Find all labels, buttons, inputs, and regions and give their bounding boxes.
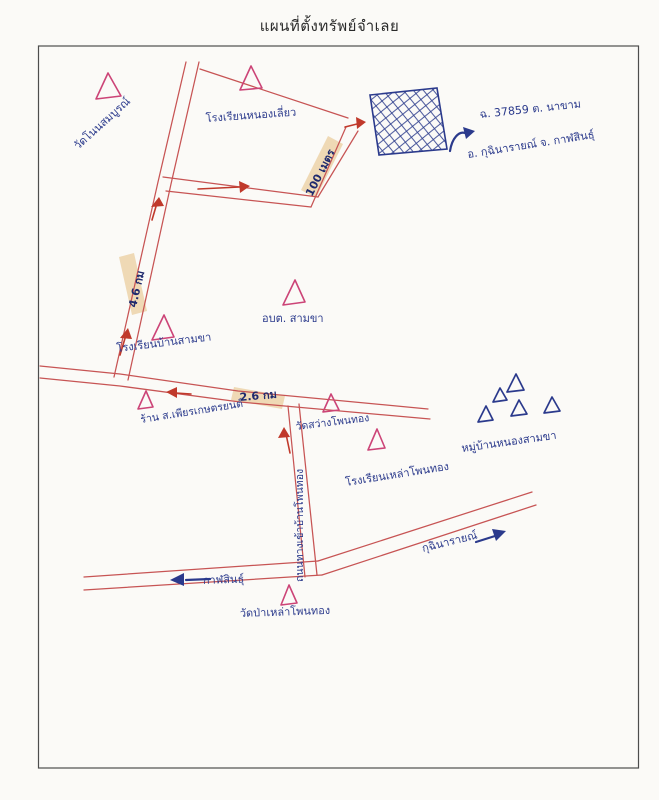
label-entry-road: ถนนทางเข้าบ้านโพนทอง	[293, 469, 306, 582]
roads	[40, 62, 536, 590]
arrow-east-head-icon	[239, 181, 250, 193]
label-wat-sawang: วัดสว่างโพนทอง	[295, 411, 370, 433]
parcel-hatched-area	[370, 88, 447, 155]
label-direction-kuchinarai: กุฉินารายณ์	[421, 529, 479, 555]
landmark-triangles	[96, 66, 385, 605]
arrow-north-head-icon	[120, 328, 132, 339]
arrow-east-icon	[198, 187, 240, 189]
arrow-to-kuchinarai-icon	[476, 536, 495, 542]
triangle-house-icon	[478, 406, 493, 422]
curved-arrow-parcel-note-icon	[450, 133, 465, 151]
triangle-house-icon	[544, 397, 560, 413]
label-wat-pa: วัดป่าเหล่าโพนทอง	[240, 603, 331, 620]
arrow-to-kuchinarai-head-icon	[492, 529, 506, 541]
curved-arrow-head-icon	[463, 127, 475, 139]
label-direction-kalasin: กาฬสินธุ์	[203, 573, 245, 587]
arrow-to-parcel-icon	[345, 124, 357, 127]
map-title: แผนที่ตั้งทรัพย์จำเลย	[0, 14, 659, 38]
road-bottom-west-upper	[84, 561, 318, 577]
label-village: หมู่บ้านหนองสามขา	[461, 429, 558, 455]
label-shop: ร้าน ส.เพียรเกษตรยนต์	[139, 397, 244, 426]
triangle-icon-shop	[138, 391, 153, 409]
label-school-samkha: โรงเรียนบ้านสามขา	[116, 329, 212, 355]
label-school-nong: โรงเรียนหนองเลี่ยว	[205, 104, 297, 125]
scanned-map-page: แผนที่ตั้งทรัพย์จำเลย	[0, 0, 659, 800]
highlight-segments	[119, 136, 343, 409]
arrow-west-icon	[176, 393, 191, 394]
village-triangle-cluster	[478, 374, 560, 422]
map-border-frame	[39, 46, 639, 768]
label-school-lao: โรงเรียนเหล่าโพนทอง	[344, 459, 450, 489]
triangle-icon-obt-samkha	[283, 280, 305, 305]
label-obt-samkha: อบต. สามขา	[262, 312, 324, 325]
triangle-house-icon	[493, 388, 507, 402]
triangle-house-icon	[511, 400, 527, 416]
triangle-icon-school-lao	[368, 429, 385, 450]
map-canvas: วัดโนนสมบูรณ์ โรงเรียนหนองเลี่ยว ฉ. 3785…	[0, 0, 659, 800]
arrow-to-parcel-head-icon	[356, 117, 366, 129]
label-parcel-line2: อ. กุฉินารายณ์ จ. กาฬสินธุ์	[466, 128, 595, 161]
label-wat-non: วัดโนนสมบูรณ์	[71, 94, 133, 152]
arrow-west-head-icon	[166, 387, 177, 398]
triangle-icon-wat-non	[96, 73, 121, 99]
arrow-north-head-icon	[278, 427, 290, 438]
label-parcel-line1: ฉ. 37859 ต. นาขาม	[479, 97, 582, 121]
triangle-icon-wat-pa	[281, 585, 297, 605]
triangle-house-icon	[507, 374, 524, 392]
